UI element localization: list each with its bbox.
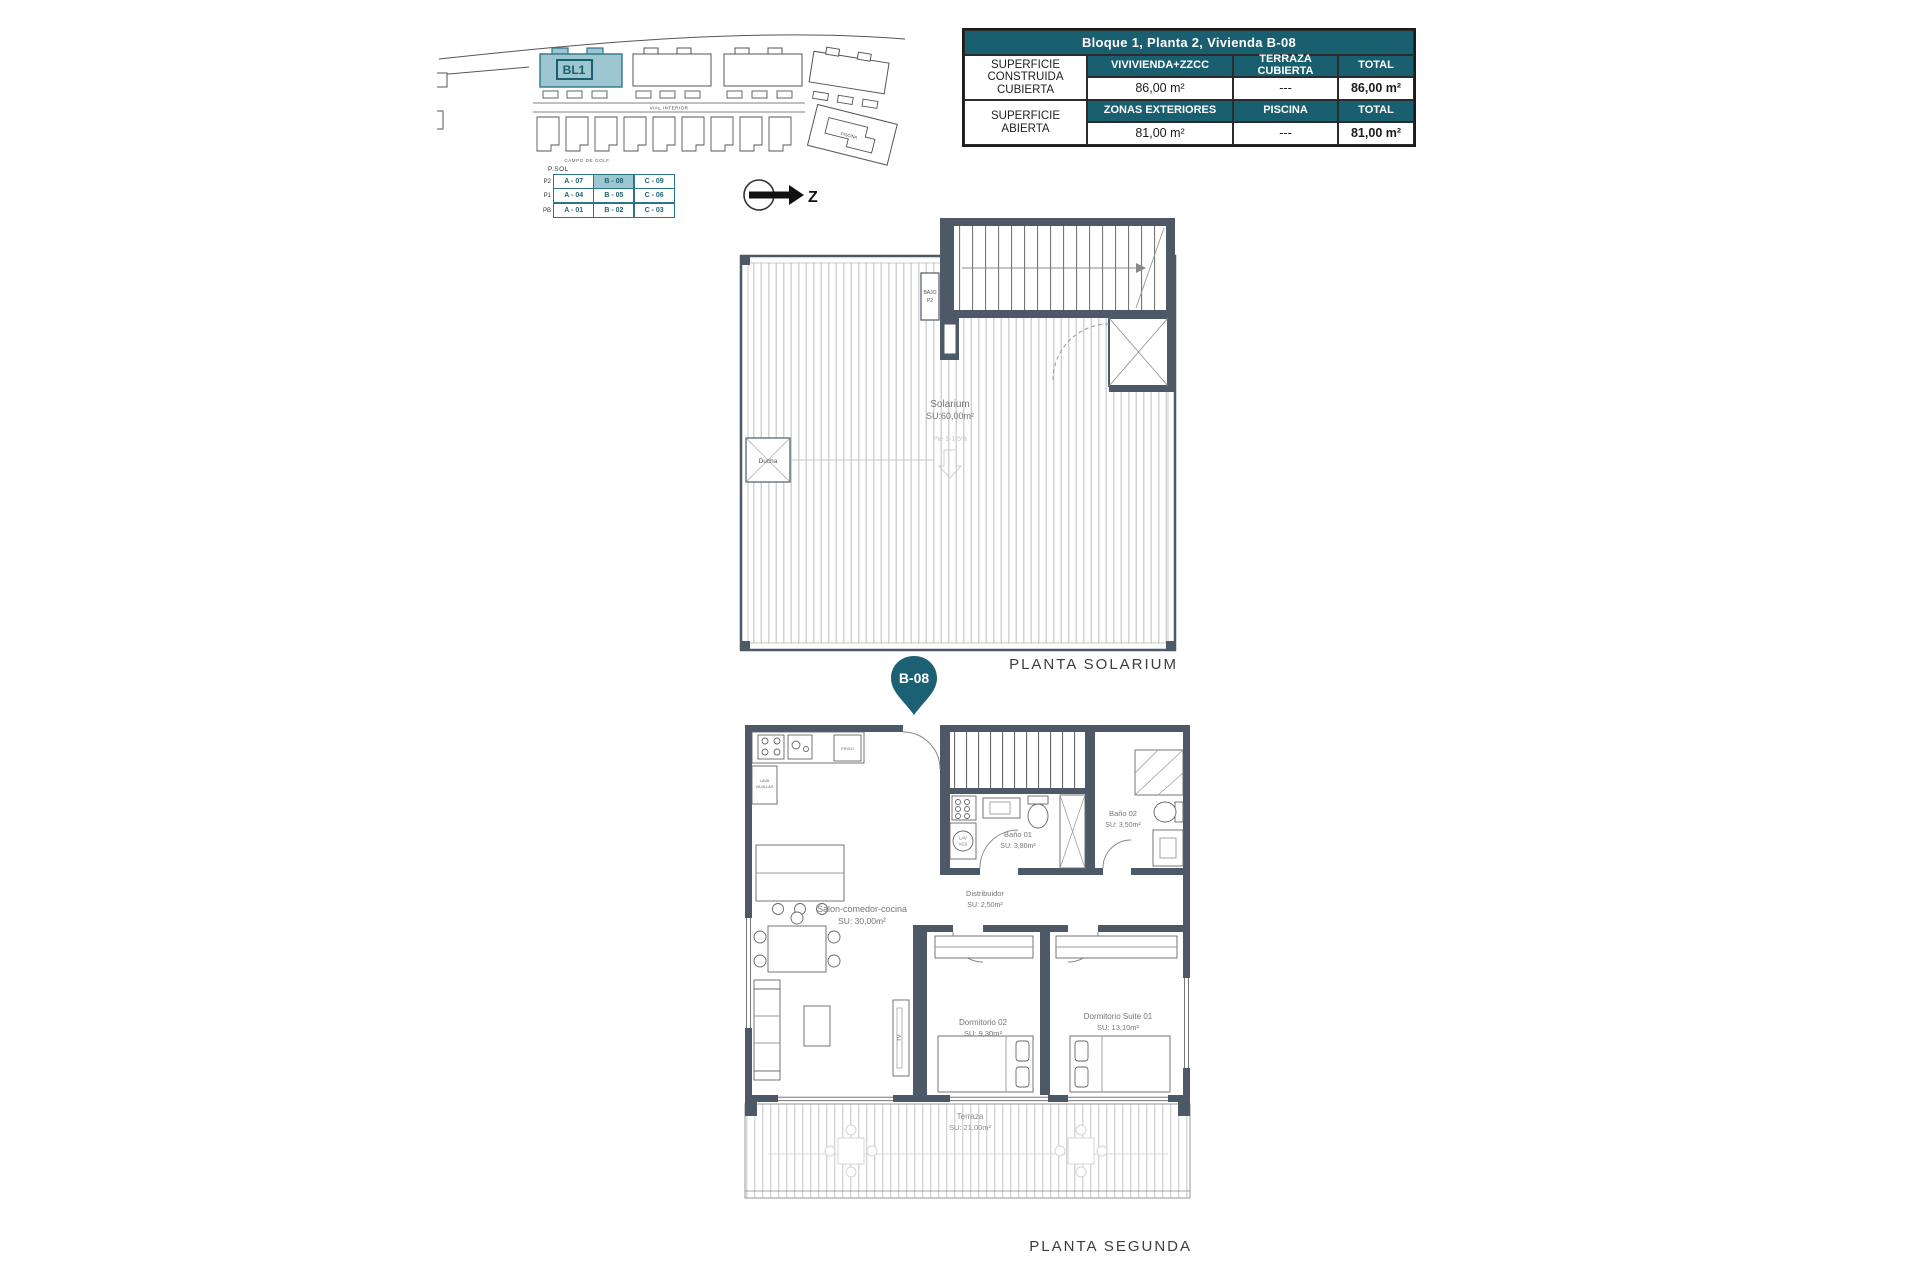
unit-cell: B - 02: [593, 203, 634, 218]
value-cell: 81,00 m²: [1087, 122, 1233, 145]
dorm2-furniture: [935, 936, 1033, 1092]
col-header: PISCINA: [1233, 100, 1338, 122]
distribuidor-area: SU: 2,50m²: [967, 902, 1003, 909]
dorm2-area: SU: 9,30m²: [964, 1029, 1002, 1038]
unit-cell: A - 07: [553, 174, 594, 189]
salon-area: SU: 30,00m²: [838, 916, 886, 926]
col-header: VIVIVIENDA+ZZCC: [1087, 55, 1233, 77]
terraza: Terraza SU: 21,00m²: [745, 1102, 1190, 1198]
dishwasher-line1: LAVA: [760, 778, 770, 783]
salon-label: Salon-comedor-cocina: [817, 904, 907, 914]
value-cell: 86,00 m²: [1087, 77, 1233, 100]
parking-row: [543, 91, 878, 108]
floor-label: P2: [534, 175, 554, 189]
solarium-room-area: SU:60,00m²: [926, 411, 974, 421]
bano1-area: SU: 3,80m²: [1000, 843, 1036, 850]
shower-label: Ducha: [759, 458, 778, 465]
house-row: [537, 117, 791, 151]
unit-cell: A - 04: [553, 188, 594, 203]
value-cell: ---: [1233, 122, 1338, 145]
floor-label: P1: [534, 189, 554, 203]
street-label: VIAL INTERIOR: [650, 106, 689, 111]
surface-info-table: Bloque 1, Planta 2, Vivienda B-08 SUPERF…: [962, 28, 1416, 147]
north-letter: Z: [808, 189, 818, 206]
plan-sheet: BL1 VIAL INTERIOR: [0, 0, 1920, 1280]
segunda-floor-plan: FRIGO LAVA VAJILLAS: [738, 718, 1198, 1223]
suite-area: SU: 13,10m²: [1097, 1023, 1140, 1032]
unit-pin: B-08: [886, 652, 942, 718]
col-header: TERRAZA CUBIERTA: [1233, 55, 1338, 77]
sofa: [754, 980, 780, 1080]
block-bl1: BL1: [540, 48, 622, 87]
tv-unit: TV: [893, 1000, 909, 1076]
shower-box: Ducha: [746, 438, 790, 482]
col-header: TOTAL: [1338, 100, 1414, 122]
total-value-cell: 86,00 m²: [1338, 77, 1414, 100]
pool-building: PISCINA: [808, 105, 898, 166]
golf-label: CAMPO DE GOLF: [564, 158, 609, 163]
stair-box-line1: BAJO: [923, 290, 936, 296]
distribuidor-label: Distribuidor: [966, 889, 1004, 898]
bano2-label: Baño 02: [1109, 809, 1137, 818]
floor-sol-label: P.SOL: [548, 166, 675, 173]
unit-cell: C - 03: [634, 203, 675, 218]
bano2-fixtures: [1135, 750, 1183, 866]
dishwasher-box: LAVA VAJILLAS: [752, 766, 777, 804]
floor-label: PB: [534, 203, 554, 217]
block-outlines: [633, 45, 890, 93]
floor-row-pb: PB A - 01 B - 02 C - 03: [534, 203, 675, 217]
dishwasher-line2: VAJILLAS: [756, 784, 774, 789]
segunda-plan-title: PLANTA SEGUNDA: [892, 1238, 1192, 1255]
unit-pin-label: B-08: [899, 670, 930, 686]
laundry-closet: LAV ACS: [950, 823, 976, 859]
stair-void-box: BAJO P2: [921, 273, 939, 320]
value-cell: ---: [1233, 77, 1338, 100]
unit-cell: B - 05: [593, 188, 634, 203]
block-bl1-label: BL1: [563, 63, 586, 77]
stair-treads: [950, 732, 1085, 788]
row2-label: SUPERFICIE ABIERTA: [964, 100, 1087, 145]
suite-label: Dormitorio Suite 01: [1084, 1012, 1153, 1021]
info-table-title: Bloque 1, Planta 2, Vivienda B-08: [964, 30, 1414, 55]
laundry-line2: ACS: [959, 842, 968, 847]
total-value-cell: 81,00 m²: [1338, 122, 1414, 145]
dining-set: [754, 912, 840, 972]
unit-cell: C - 09: [634, 174, 675, 189]
bano1-label: Baño 01: [1004, 830, 1032, 839]
bano2-area: SU: 3,50m²: [1105, 822, 1141, 829]
coffee-table: [804, 1006, 830, 1046]
row1-label: SUPERFICIE CONSTRUIDA CUBIERTA: [964, 55, 1087, 100]
terraza-label: Terraza: [957, 1112, 984, 1121]
laundry-line1: LAV: [959, 836, 967, 841]
dorm2-label: Dormitorio 02: [959, 1018, 1008, 1027]
unit-cell: C - 06: [634, 188, 675, 203]
stair-box-line2: P2: [927, 298, 933, 304]
col-header: ZONAS EXTERIORES: [1087, 100, 1233, 122]
unit-cell: A - 01: [553, 203, 594, 218]
floor-row-p1: P1 A - 04 B - 05 C - 06: [534, 189, 675, 203]
col-header: TOTAL: [1338, 55, 1414, 77]
fridge-label: FRIGO: [841, 746, 854, 751]
terraza-area: SU: 21,00m²: [949, 1123, 992, 1132]
floor-row-p2: P2 A - 07 B - 08 C - 09: [534, 175, 675, 189]
site-plan: BL1 VIAL INTERIOR: [437, 15, 907, 167]
solarium-room-label: Solarium: [930, 399, 969, 410]
tv-label: TV: [897, 1034, 903, 1041]
unit-selector-table: P.SOL P2 A - 07 B - 08 C - 09 P1 A - 04 …: [534, 166, 675, 218]
unit-cell-selected: B - 08: [593, 174, 634, 189]
slope-label: Pte 1-1.5%: [933, 436, 968, 443]
solarium-floor-plan: BAJO P2 Ducha Solarium SU:60,00m² Pte 1-…: [738, 210, 1178, 690]
